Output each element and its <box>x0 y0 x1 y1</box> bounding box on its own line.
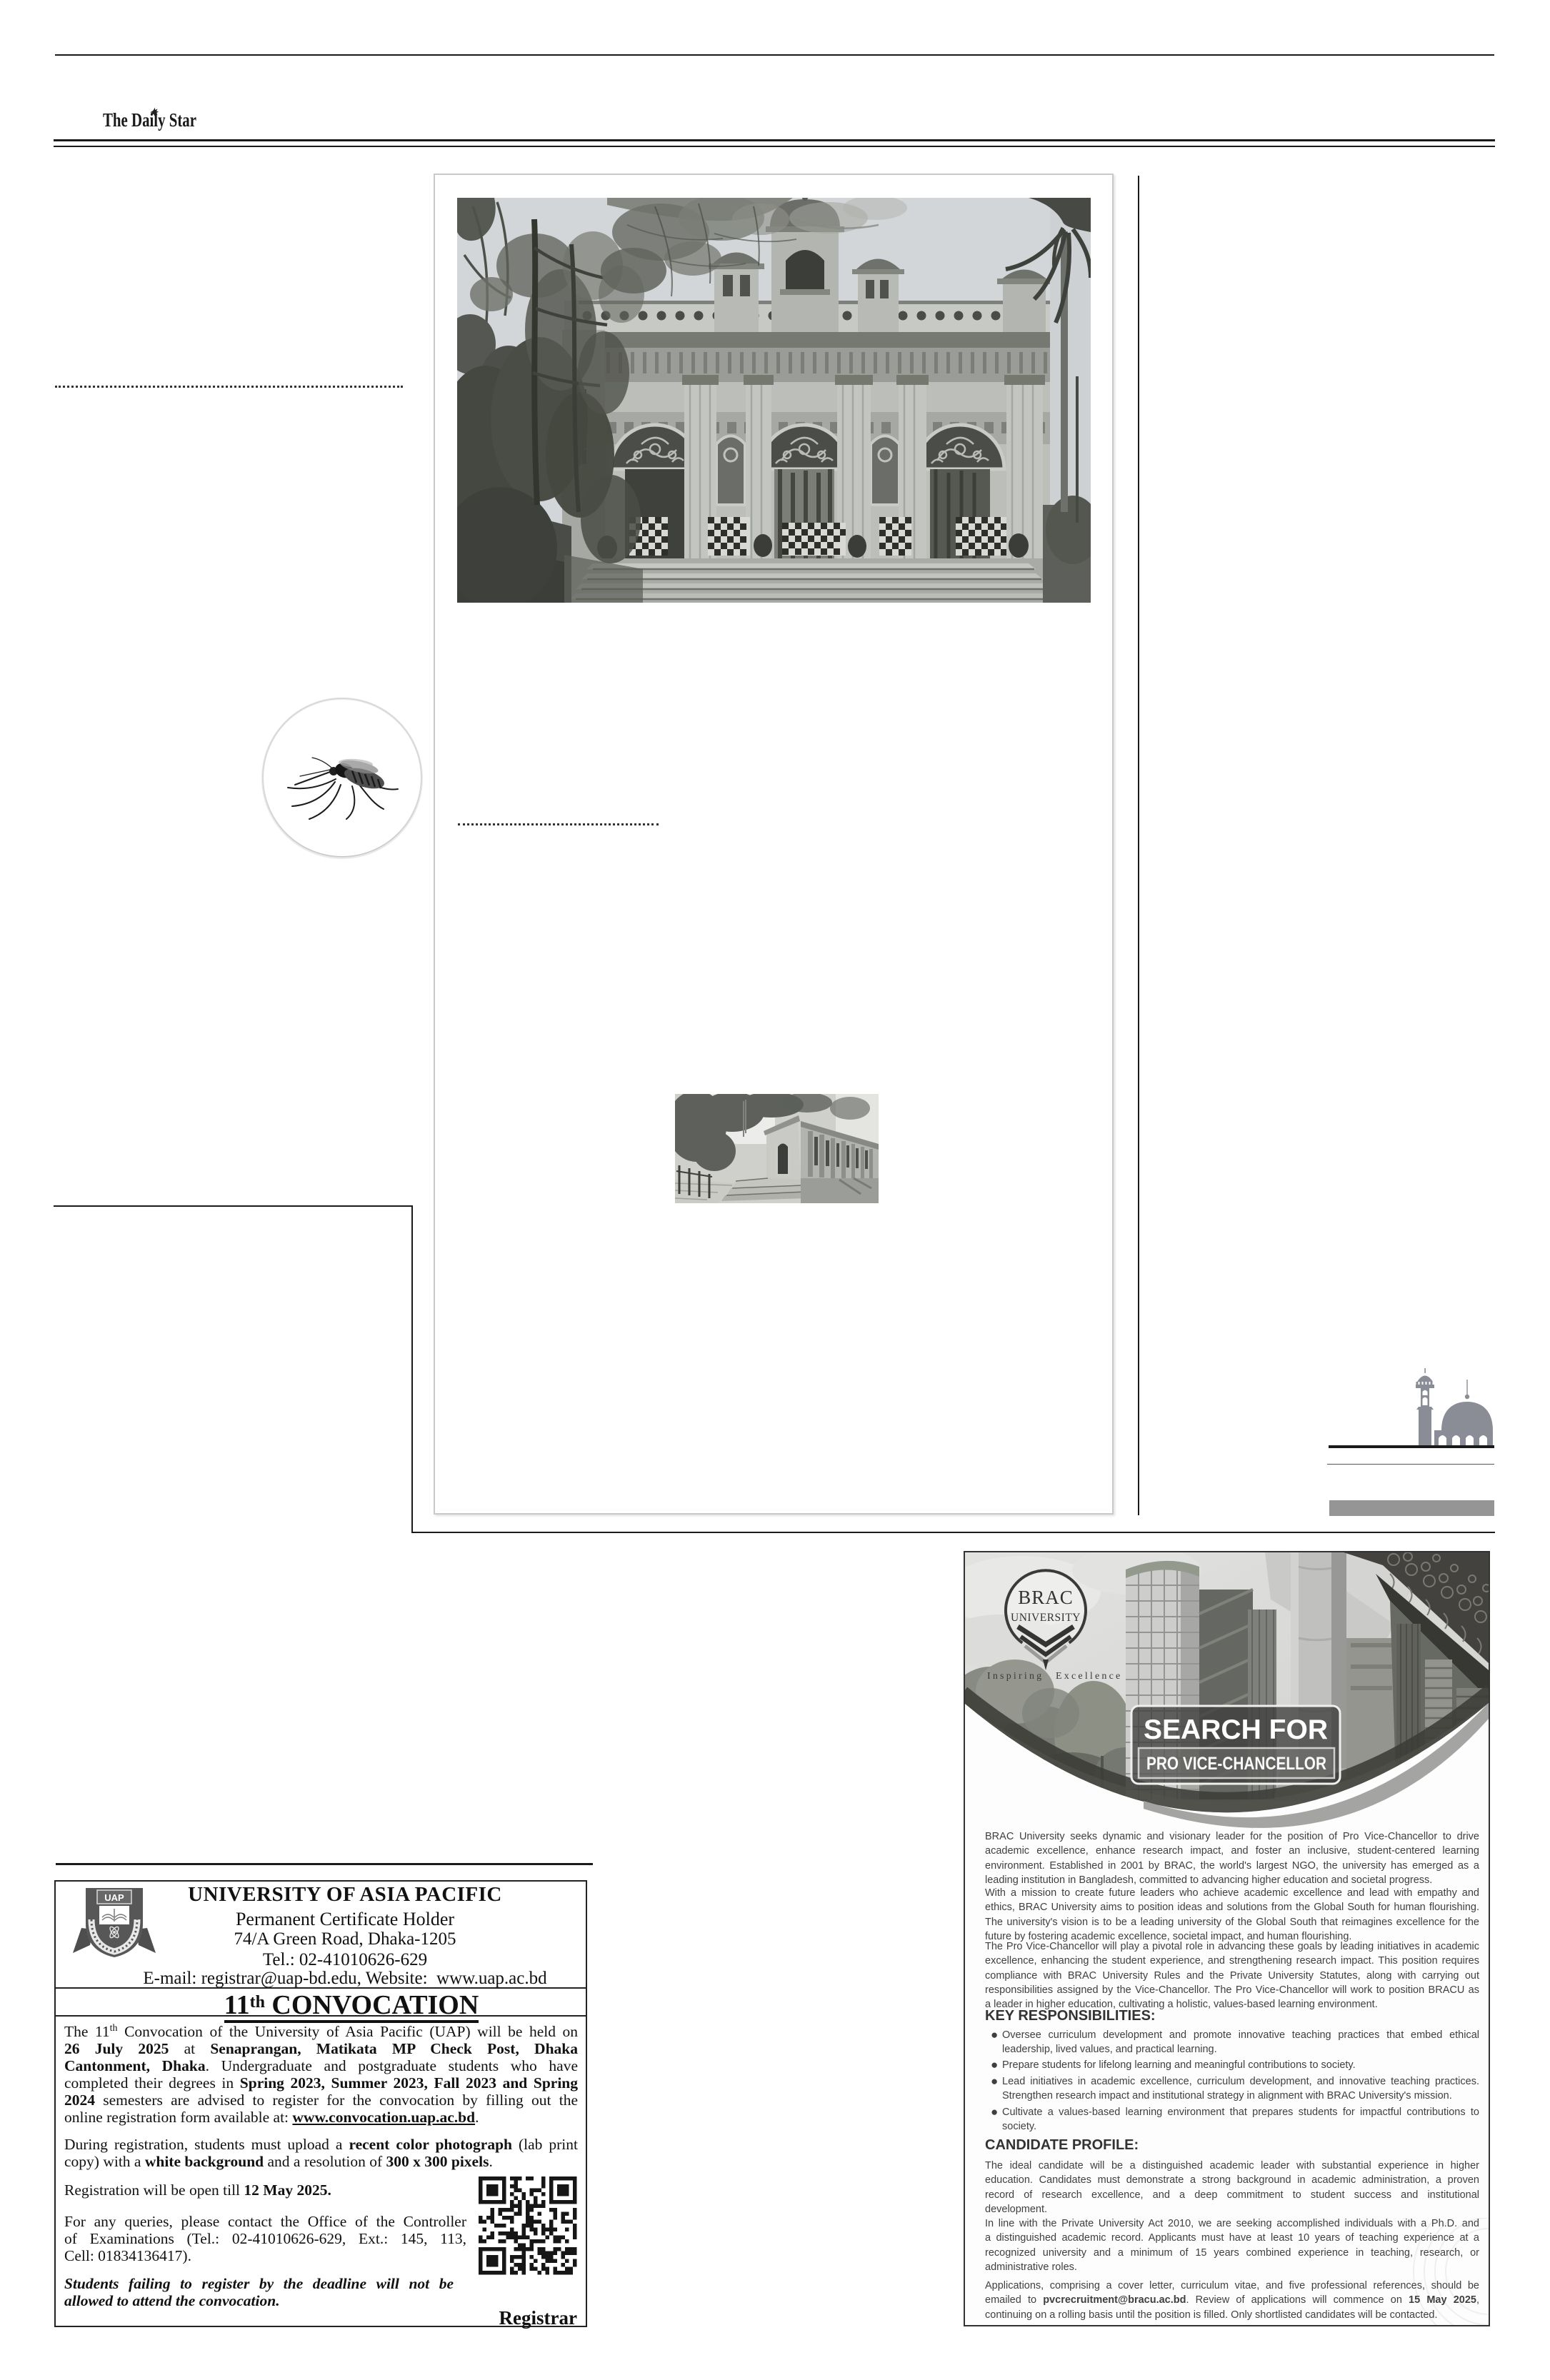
svg-text:UNIVERSITY: UNIVERSITY <box>1011 1612 1081 1624</box>
svg-text:PRO VICE-CHANCELLOR: PRO VICE-CHANCELLOR <box>1146 1754 1326 1774</box>
svg-text:UAP: UAP <box>104 1892 124 1903</box>
svg-text:Inspiring Excellence: Inspiring Excellence <box>987 1671 1122 1682</box>
svg-text:BRAC: BRAC <box>1018 1587 1074 1608</box>
svg-text:SEARCH FOR: SEARCH FOR <box>1144 1714 1328 1745</box>
svg-text:The Daily Star: The Daily Star <box>103 109 196 131</box>
